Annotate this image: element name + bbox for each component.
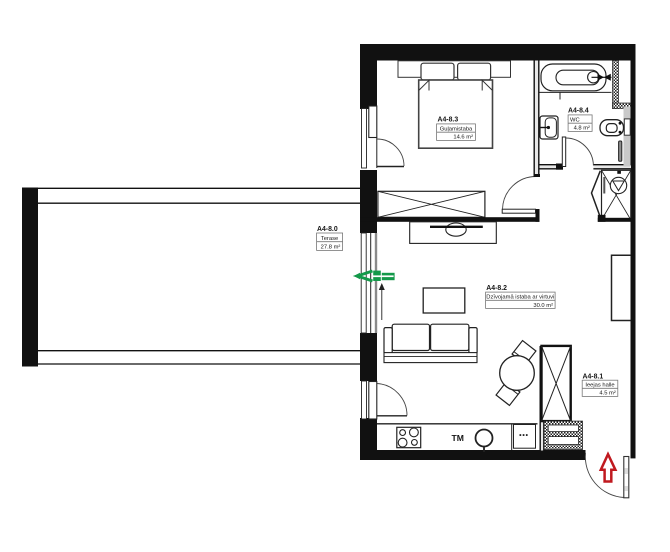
- svg-text:4.8 m²: 4.8 m²: [574, 126, 590, 132]
- svg-text:Terase: Terase: [321, 236, 338, 242]
- svg-text:A4-8.4: A4-8.4: [568, 107, 589, 114]
- svg-text:30.0 m²: 30.0 m²: [533, 303, 553, 309]
- svg-text:14.6 m²: 14.6 m²: [453, 135, 473, 141]
- svg-text:Dzīvojamā istaba ar virtuvi: Dzīvojamā istaba ar virtuvi: [486, 295, 554, 301]
- svg-text:27.8 m²: 27.8 m²: [321, 245, 341, 251]
- svg-text:Ieejas halle: Ieejas halle: [585, 383, 614, 389]
- svg-text:TM: TM: [452, 433, 464, 443]
- svg-text:Guļamistaba: Guļamistaba: [440, 126, 473, 132]
- svg-text:A4-8.2: A4-8.2: [486, 285, 507, 292]
- svg-text:A4-8.0: A4-8.0: [317, 226, 338, 233]
- svg-text:A4-8.1: A4-8.1: [583, 373, 604, 380]
- svg-text:A4-8.3: A4-8.3: [438, 117, 459, 124]
- svg-text:WC: WC: [570, 117, 580, 123]
- svg-text:4.5 m²: 4.5 m²: [599, 391, 615, 397]
